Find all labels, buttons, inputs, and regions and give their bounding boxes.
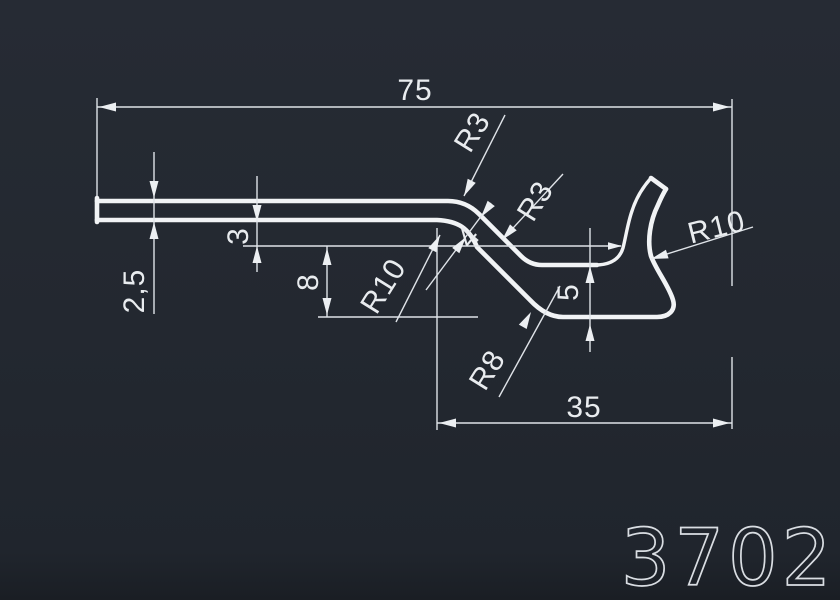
arrowheads — [99, 103, 730, 428]
arrow-8-bottom — [323, 298, 332, 315]
cad-viewport: 75 35 2,5 3 8 5 4 R3 R3 R10 R8 R10 3702 — [0, 0, 840, 600]
arrow-throat-ref — [608, 242, 622, 250]
arrow-r3-top — [460, 179, 476, 198]
label-radius-hook-outer: R10 — [684, 204, 748, 250]
part-number: 3702 — [621, 514, 836, 600]
label-radius-bottom-bend: R8 — [463, 344, 512, 396]
arrow-2-5-bottom — [150, 222, 159, 239]
arrow-75-right — [713, 103, 730, 112]
arrow-35-left — [439, 419, 456, 428]
arrow-2-5-top — [150, 181, 159, 198]
label-radius-mid-bend: R3 — [511, 175, 560, 227]
profile-drawing: 75 35 2,5 3 8 5 4 R3 R3 R10 R8 R10 3702 — [0, 0, 840, 600]
profile-neck-hook-inner — [595, 178, 651, 265]
arrow-3-bottom — [253, 246, 262, 263]
arrow-35-right — [713, 419, 730, 428]
arrow-5-top — [586, 266, 595, 283]
arrow-5-bottom — [586, 324, 595, 341]
label-total-width: 75 — [397, 74, 432, 107]
arrow-8-top — [323, 248, 332, 265]
label-radius-top-bend: R3 — [448, 106, 497, 158]
arrow-r8 — [519, 310, 535, 329]
label-step-offset: 3 — [222, 227, 255, 245]
arrow-r10-inner — [428, 233, 444, 252]
arrow-75-left — [99, 103, 116, 112]
label-flange-height: 5 — [552, 283, 585, 301]
profile-hook-tip-cap — [651, 178, 666, 189]
label-flange-width: 35 — [566, 391, 601, 424]
label-radius-inner-bend: R10 — [354, 253, 413, 320]
label-channel-depth: 8 — [292, 273, 325, 291]
label-strip-thickness: 2,5 — [118, 269, 151, 314]
